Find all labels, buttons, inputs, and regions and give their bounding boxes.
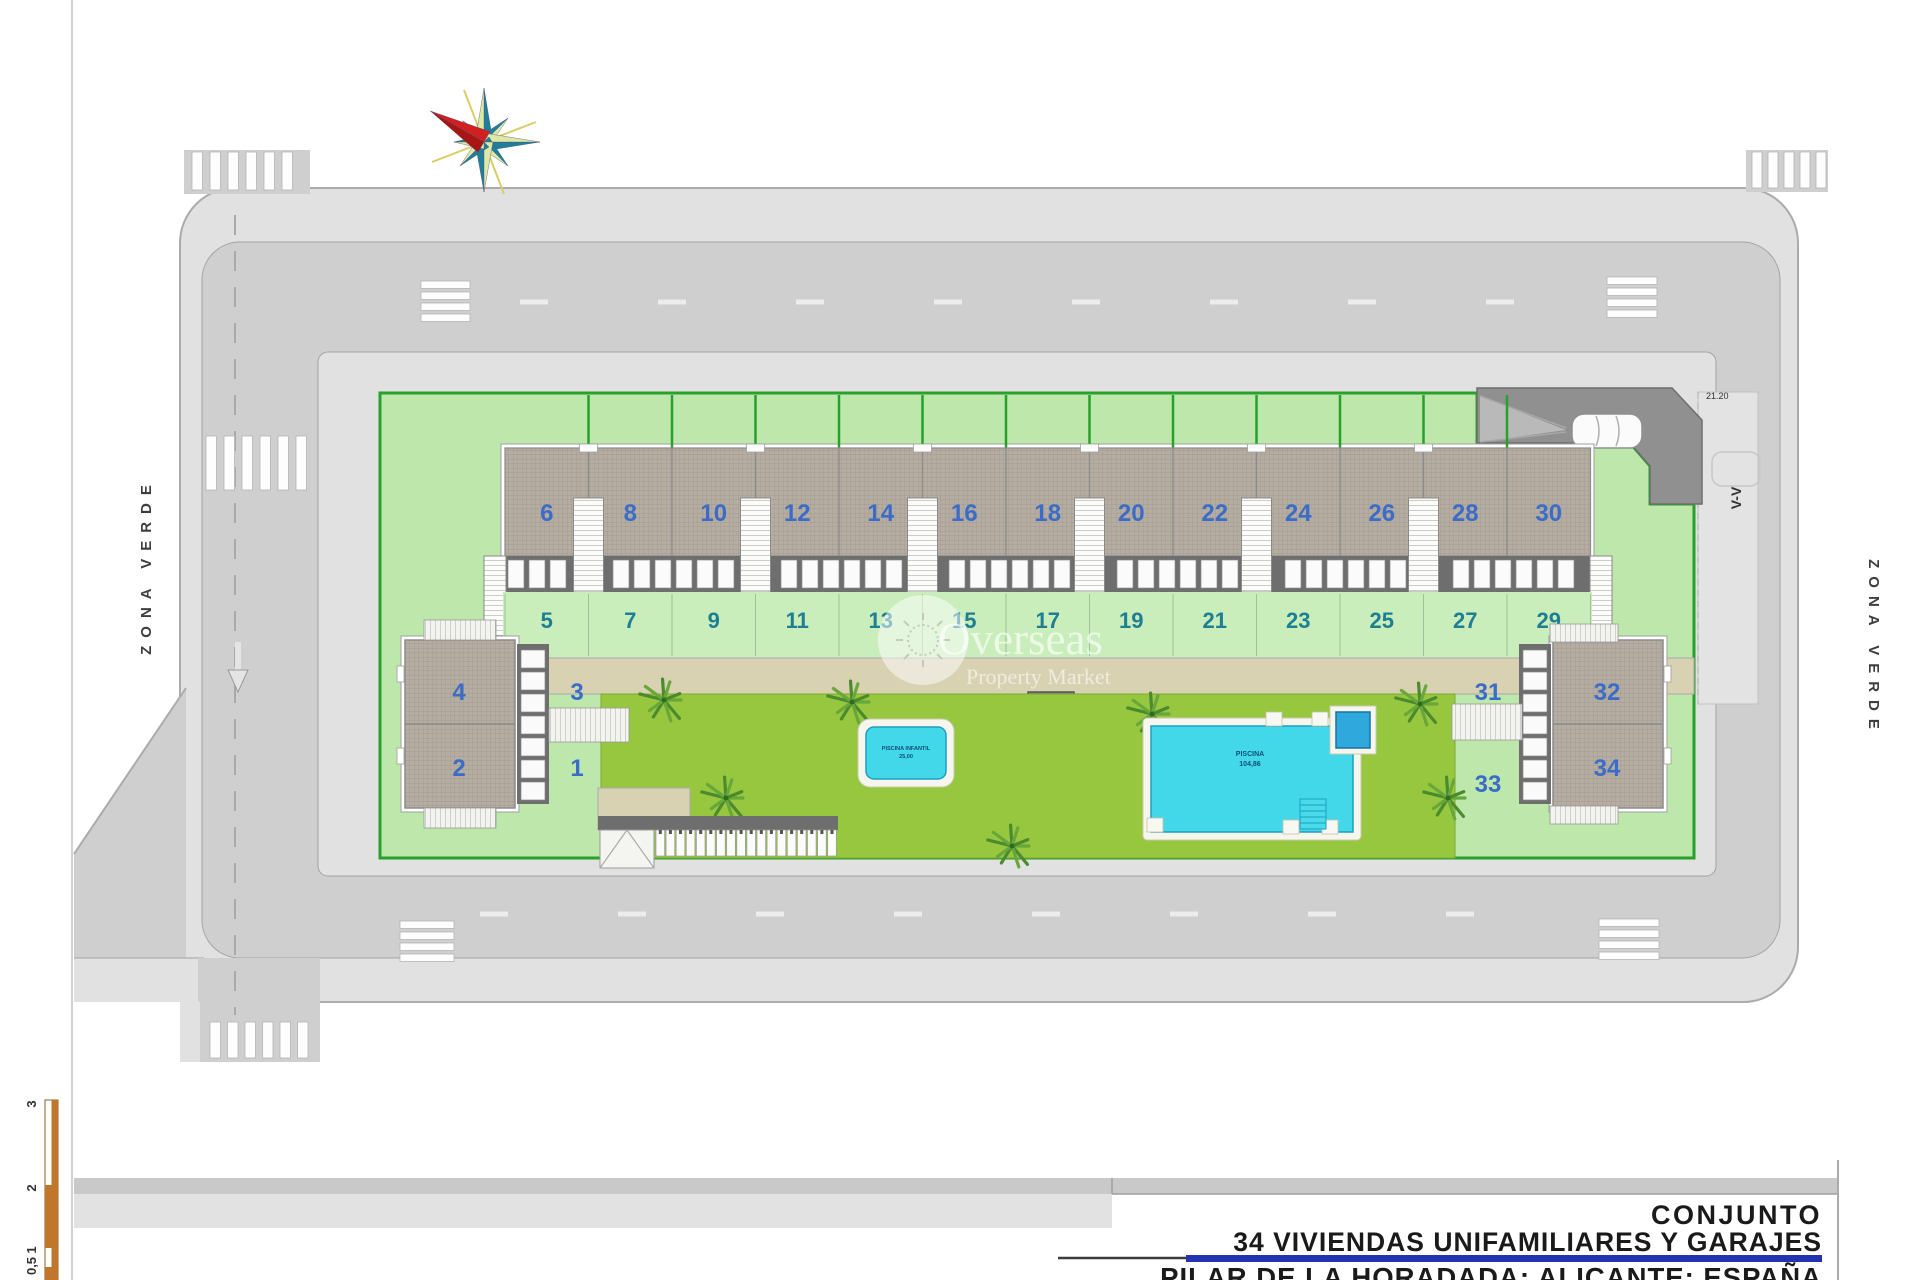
- pergola-slat: [1285, 560, 1301, 588]
- crosswalk-stripe: [1607, 288, 1657, 296]
- crosswalk-stripe: [1607, 277, 1657, 285]
- storage-cell-mark: [780, 830, 783, 834]
- house-number-upper: 20: [1118, 500, 1145, 527]
- pergola-slat: [886, 560, 902, 588]
- crosswalk-stripe: [421, 314, 470, 322]
- building-notch: [397, 748, 404, 764]
- pergola-slat: [970, 560, 986, 588]
- pergola-slat: [1537, 560, 1553, 588]
- crosswalk-stripe: [1784, 152, 1794, 188]
- storage-cell-mark: [750, 830, 753, 834]
- watermark-name: Overseas: [938, 614, 1103, 664]
- storage-cell-mark: [820, 830, 823, 834]
- house-number-upper: 10: [700, 500, 727, 527]
- house-number-lower: 11: [786, 608, 809, 633]
- pergola-slat: [655, 560, 671, 588]
- pergola-slat: [823, 560, 839, 588]
- crosswalk-stripe: [1599, 919, 1659, 927]
- building-pergola-slat: [1523, 716, 1547, 734]
- pergola-slat: [991, 560, 1007, 588]
- pool-edge-pad: [1266, 712, 1282, 726]
- pergola-slat: [1138, 560, 1154, 588]
- pergola-slat: [613, 560, 629, 588]
- compass-point: [484, 133, 540, 142]
- pergola-slat: [1201, 560, 1217, 588]
- crosswalk-stripe: [242, 436, 253, 490]
- building-number: 32: [1594, 679, 1621, 706]
- pergola-slat: [634, 560, 650, 588]
- house-number-upper: 12: [784, 500, 811, 527]
- crosswalk-stripe: [298, 1022, 309, 1058]
- crosswalk-stripe: [228, 1022, 239, 1058]
- scale-tick-label: 2: [24, 1184, 39, 1191]
- house-number-lower: 7: [624, 608, 636, 633]
- plot-number: 3: [570, 679, 583, 706]
- crosswalk-stripe: [421, 281, 470, 289]
- pergola-slat: [781, 560, 797, 588]
- building-notch: [1664, 748, 1671, 764]
- house-number-lower: 23: [1286, 608, 1310, 633]
- house-number-upper: 30: [1535, 500, 1562, 527]
- storage-cell-mark: [659, 830, 662, 834]
- project-title: CONJUNTO: [1651, 1200, 1822, 1230]
- pergola-slat: [1306, 560, 1322, 588]
- plot-number: 33: [1475, 771, 1502, 798]
- building-stairs-bottom: [1550, 806, 1618, 824]
- house-number-lower: 21: [1203, 608, 1227, 633]
- pergola-slat: [1516, 560, 1532, 588]
- crosswalk-stripe: [400, 932, 454, 940]
- building-pergola-slat: [521, 738, 545, 756]
- pergola-slat: [697, 560, 713, 588]
- roof-notch: [1248, 444, 1266, 452]
- crosswalk-stripe: [1800, 152, 1810, 188]
- crosswalk-stripe: [1599, 941, 1659, 949]
- left-road-south-sidewalk: [180, 1002, 200, 1062]
- crosswalk-stripe: [400, 954, 454, 962]
- pergola-slat: [1495, 560, 1511, 588]
- pergola-slat: [676, 560, 692, 588]
- crosswalk-stripe: [1599, 952, 1659, 960]
- plot-number: 1: [570, 755, 583, 782]
- pool-edge-pad: [1312, 712, 1328, 726]
- storage-cell-mark: [709, 830, 712, 834]
- crosswalk-stripe: [210, 152, 221, 190]
- building-stairs-bottom: [424, 808, 496, 828]
- building-walkway-stairs: [549, 708, 629, 742]
- storage-cell-mark: [719, 830, 722, 834]
- house-number-lower: 25: [1370, 608, 1394, 633]
- small-pool-water: [866, 727, 946, 779]
- building-number: 34: [1594, 755, 1621, 782]
- scale-tick-label: 3: [24, 1100, 39, 1107]
- scale-tick-label: 0,5: [24, 1257, 39, 1275]
- palm-trunk: [1418, 702, 1423, 707]
- compass-rose-icon: [430, 88, 540, 194]
- storage-cell-mark: [800, 830, 803, 834]
- storage-cell-mark: [740, 830, 743, 834]
- house-number-upper: 14: [867, 500, 894, 527]
- roof-notch: [580, 444, 598, 452]
- section-vv-label: V-V: [1728, 486, 1744, 509]
- palm-trunk: [1150, 712, 1155, 717]
- house-number-upper: 16: [951, 500, 978, 527]
- driveway-dimension-label: 21.20: [1706, 391, 1729, 401]
- house-number-upper: 18: [1034, 500, 1061, 527]
- pergola-slat: [1033, 560, 1049, 588]
- title-underline-accent: [1186, 1255, 1822, 1262]
- pergola-slat: [865, 560, 881, 588]
- crosswalk-stripe: [400, 943, 454, 951]
- building-pergola-slat: [521, 694, 545, 712]
- pergola-slat: [1369, 560, 1385, 588]
- stairwell: [1409, 498, 1439, 592]
- site-plan-sheet: 6810121416182022242628305791113151719212…: [0, 0, 1920, 1280]
- scale-tick-label: 1: [24, 1246, 39, 1253]
- palm-trunk: [662, 698, 667, 703]
- house-number-lower: 5: [541, 608, 553, 633]
- house-number-lower: 19: [1119, 608, 1143, 633]
- crosswalk-stripe: [1599, 930, 1659, 938]
- canopy-structure: [600, 830, 654, 868]
- house-number-upper: 6: [540, 500, 553, 527]
- crosswalk-stripe: [264, 152, 275, 190]
- car-icon: [1572, 414, 1642, 448]
- storage-cell-mark: [730, 830, 733, 834]
- storage-cell-mark: [810, 830, 813, 834]
- stairwell: [908, 498, 938, 592]
- pergola-slat: [718, 560, 734, 588]
- small-pool-label: PISCINA INFANTIL: [882, 746, 931, 752]
- storage-cell-mark: [679, 830, 682, 834]
- plot-number: 31: [1475, 679, 1502, 706]
- storage-cell-mark: [699, 830, 702, 834]
- bottom-road-south-sidewalk: [74, 958, 204, 1002]
- house-number-upper: 28: [1452, 500, 1479, 527]
- pergola-slat: [508, 560, 524, 588]
- building-notch: [1664, 666, 1671, 682]
- zona-verde-label-left: ZONA VERDE: [138, 477, 155, 655]
- building-stairs-top: [1550, 624, 1618, 642]
- building-pergola-slat: [521, 650, 545, 668]
- crosswalk-stripe: [206, 436, 217, 490]
- crosswalk-stripe: [192, 152, 203, 190]
- building-walkway-stairs: [1452, 704, 1522, 740]
- storage-cell-mark: [790, 830, 793, 834]
- pool-steps: [1300, 799, 1326, 829]
- crosswalk-stripe: [1768, 152, 1778, 188]
- lower-street-band: [74, 1178, 1838, 1194]
- street-corner-flare: [74, 688, 186, 1002]
- pergola-slat: [1558, 560, 1574, 588]
- pergola-slat: [1180, 560, 1196, 588]
- pergola-slat: [1390, 560, 1406, 588]
- stairwell: [1075, 498, 1105, 592]
- pergola-slat: [844, 560, 860, 588]
- storage-cell-mark: [831, 830, 834, 834]
- house-number-lower: 27: [1453, 608, 1477, 633]
- site-plan-drawing: 6810121416182022242628305791113151719212…: [0, 0, 1920, 1280]
- pergola-slat: [1348, 560, 1364, 588]
- pergola-slat: [1117, 560, 1133, 588]
- storage-cell-mark: [689, 830, 692, 834]
- project-subtitle: 34 VIVIENDAS UNIFAMILIARES Y GARAJES: [1233, 1227, 1822, 1257]
- crosswalk-stripe: [260, 436, 271, 490]
- pergola-slat: [1054, 560, 1070, 588]
- zona-verde-label-right: ZONA VERDE: [1865, 559, 1882, 737]
- stairwell: [574, 498, 604, 592]
- pool-edge-pad: [1283, 820, 1299, 834]
- building-pergola-slat: [521, 782, 545, 800]
- project-location: PILAR DE LA HORADADA; ALICANTE; ESPAÑA: [1160, 1262, 1822, 1280]
- house-number-upper: 22: [1201, 500, 1228, 527]
- house-number-lower: 9: [708, 608, 720, 633]
- building-pergola-slat: [521, 716, 545, 734]
- house-number-upper: 24: [1285, 500, 1312, 527]
- pergola-slat: [529, 560, 545, 588]
- building-pergola-slat: [1523, 738, 1547, 756]
- crosswalk-stripe: [1607, 299, 1657, 307]
- building-pergola-slat: [1523, 694, 1547, 712]
- crosswalk-stripe: [224, 436, 235, 490]
- storage-cell-mark: [770, 830, 773, 834]
- crosswalk-stripe: [210, 1022, 221, 1058]
- pergola-slat: [1159, 560, 1175, 588]
- car-body: [1572, 414, 1642, 448]
- roof-notch: [1081, 444, 1099, 452]
- house-number-upper: 26: [1368, 500, 1395, 527]
- crosswalk-stripe: [246, 152, 257, 190]
- scale-bar-segment: [45, 1185, 58, 1248]
- building-pergola-slat: [1523, 650, 1547, 668]
- watermark-tagline: Property Market: [966, 664, 1111, 689]
- crosswalk-stripe: [263, 1022, 274, 1058]
- building-notch: [397, 666, 404, 682]
- small-pool-area: 25,00: [899, 754, 913, 760]
- spa-water: [1336, 712, 1370, 748]
- large-pool-area: 104,86: [1239, 761, 1261, 768]
- palm-trunk: [1446, 796, 1451, 801]
- crosswalk-stripe: [400, 921, 454, 929]
- crosswalk-stripe: [296, 436, 307, 490]
- palm-trunk: [850, 700, 855, 705]
- stairwell: [1242, 498, 1272, 592]
- crosswalk-stripe: [421, 303, 470, 311]
- scale-bar-segment: [45, 1267, 58, 1280]
- building-pergola-slat: [1523, 760, 1547, 778]
- house-number-upper: 8: [624, 500, 637, 527]
- palm-trunk: [724, 796, 729, 801]
- pergola-slat: [1327, 560, 1343, 588]
- pergola-slat: [550, 560, 566, 588]
- stairwell: [741, 498, 771, 592]
- scale-bar-segment: [52, 1100, 59, 1185]
- building-pergola-slat: [1523, 672, 1547, 690]
- pergola-slat: [949, 560, 965, 588]
- pool-edge-pad: [1147, 818, 1163, 832]
- crosswalk-stripe: [280, 1022, 291, 1058]
- palm-trunk: [1010, 844, 1015, 849]
- large-pool-label: PISCINA: [1236, 751, 1264, 758]
- roof-notch: [1415, 444, 1433, 452]
- building-pergola-slat: [521, 672, 545, 690]
- roof-notch: [747, 444, 765, 452]
- crosswalk-stripe: [1816, 152, 1826, 188]
- crosswalk-stripe: [228, 152, 239, 190]
- storage-beam: [598, 816, 838, 830]
- storage-cell-mark: [760, 830, 763, 834]
- crosswalk-stripe: [245, 1022, 256, 1058]
- scale-bar-segment: [52, 1248, 59, 1267]
- building-number: 2: [452, 755, 465, 782]
- building-number: 4: [452, 679, 466, 706]
- pergola-slat: [1474, 560, 1490, 588]
- roof-notch: [914, 444, 932, 452]
- crosswalk-stripe: [1752, 152, 1762, 188]
- pergola-slat: [1222, 560, 1238, 588]
- ramp-strip: [1698, 392, 1758, 704]
- pergola-slat: [1012, 560, 1028, 588]
- storage-cell-mark: [669, 830, 672, 834]
- building-pergola-slat: [1523, 782, 1547, 800]
- building-stairs-top: [424, 620, 496, 640]
- crosswalk-stripe: [421, 292, 470, 300]
- crosswalk-stripe: [282, 152, 293, 190]
- pergola-slat: [1453, 560, 1469, 588]
- crosswalk-stripe: [1607, 310, 1657, 318]
- building-pergola-slat: [521, 760, 545, 778]
- pergola-slat: [802, 560, 818, 588]
- crosswalk-stripe: [278, 436, 289, 490]
